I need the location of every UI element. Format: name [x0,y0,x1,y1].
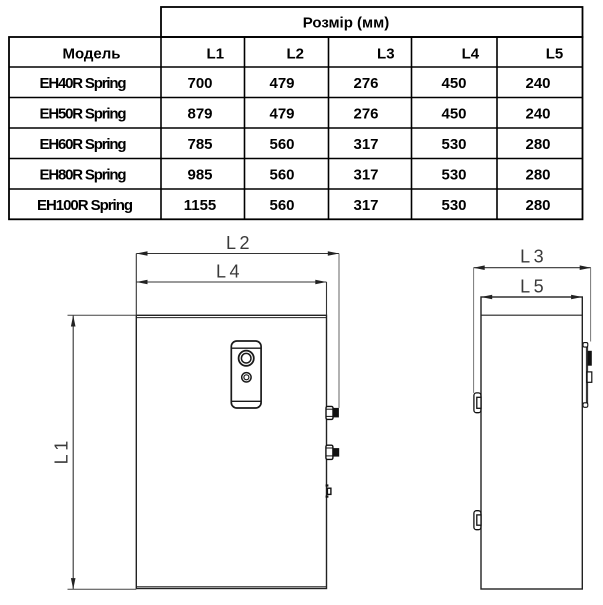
svg-text:530: 530 [441,167,466,184]
svg-text:280: 280 [525,136,550,153]
svg-text:700: 700 [187,75,212,92]
svg-text:Модель: Модель [62,46,120,63]
svg-text:276: 276 [353,106,378,123]
svg-text:560: 560 [269,197,294,214]
svg-text:985: 985 [187,167,212,184]
svg-text:530: 530 [441,197,466,214]
svg-text:530: 530 [441,136,466,153]
svg-text:L3: L3 [377,46,395,63]
svg-text:1155: 1155 [184,197,217,214]
svg-text:L1: L1 [52,437,72,464]
svg-text:240: 240 [525,75,550,92]
svg-text:280: 280 [525,197,550,214]
svg-text:L2: L2 [226,233,253,253]
svg-text:560: 560 [269,136,294,153]
svg-text:EH100R Spring: EH100R Spring [37,197,133,214]
svg-text:L5: L5 [520,277,547,297]
svg-text:L5: L5 [546,46,564,63]
svg-text:240: 240 [525,106,550,123]
svg-text:317: 317 [353,197,378,214]
svg-text:479: 479 [269,106,294,123]
svg-text:450: 450 [441,106,466,123]
svg-text:450: 450 [441,75,466,92]
svg-text:479: 479 [269,75,294,92]
svg-text:785: 785 [187,136,212,153]
svg-text:L1: L1 [207,46,225,63]
svg-text:Розмір (мм): Розмір (мм) [303,15,389,32]
svg-text:276: 276 [353,75,378,92]
svg-text:560: 560 [269,167,294,184]
svg-text:EH40R Spring: EH40R Spring [40,75,127,92]
svg-text:317: 317 [353,167,378,184]
svg-text:L4: L4 [462,46,480,63]
svg-text:L2: L2 [286,46,304,63]
svg-text:L4: L4 [216,262,243,282]
svg-text:EH60R Spring: EH60R Spring [40,136,127,153]
svg-text:317: 317 [353,136,378,153]
svg-text:280: 280 [525,167,550,184]
svg-text:EH80R Spring: EH80R Spring [40,167,127,184]
svg-text:EH50R Spring: EH50R Spring [40,106,127,123]
svg-text:L3: L3 [520,247,547,267]
svg-text:879: 879 [187,106,212,123]
